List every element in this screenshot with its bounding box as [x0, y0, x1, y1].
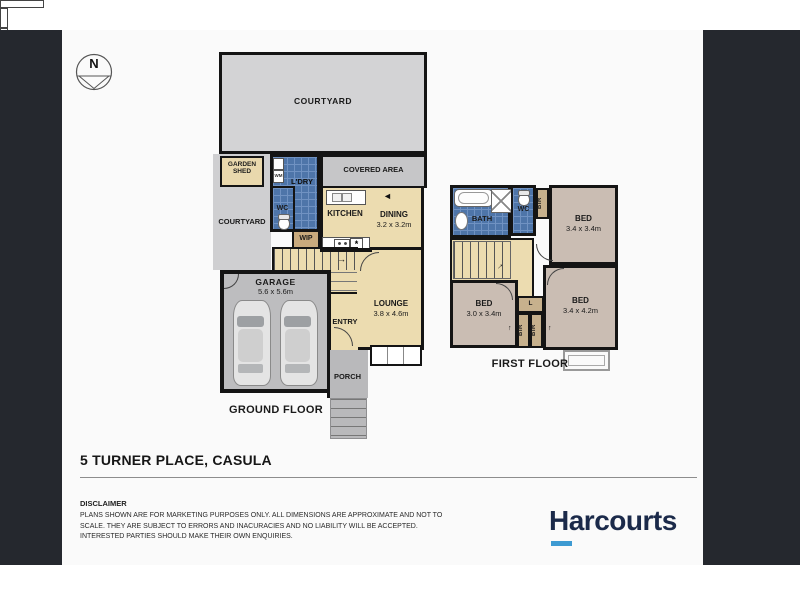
bed2-dimensions: 3.0 x 3.4m — [452, 310, 516, 318]
car-windshield — [237, 316, 264, 327]
bed3-label: BED — [545, 297, 616, 306]
courtyard-side-label: COURTYARD — [212, 218, 272, 226]
kitchen-lounge-wall — [320, 248, 372, 252]
car-rear-window — [285, 364, 310, 373]
toilet-tank-icon — [278, 214, 290, 220]
north-compass-icon: N — [75, 53, 113, 91]
car-roof — [238, 329, 263, 362]
slider-arrow-icon: ◄ — [383, 192, 392, 201]
toilet-tank-icon — [518, 190, 530, 196]
entry-landing-steps — [331, 272, 357, 294]
sliding-door — [0, 0, 44, 8]
wc-first-label: WC — [511, 206, 536, 214]
window — [0, 8, 8, 28]
dryer-icon — [273, 158, 284, 170]
bed1-label: BED — [551, 215, 616, 224]
entry-label: ENTRY — [328, 318, 362, 326]
address-divider — [80, 477, 697, 478]
bed1-dimensions: 3.4 x 3.4m — [551, 225, 616, 233]
covered-area-label: COVERED AREA — [322, 166, 425, 174]
bathtub-icon — [454, 189, 493, 207]
bay-window — [370, 345, 422, 366]
lounge-label: LOUNGE — [360, 300, 422, 309]
laundry-label: L'DRY — [284, 178, 320, 186]
ground-floor-title: GROUND FLOOR — [215, 404, 337, 416]
porch-label: PORCH — [327, 373, 368, 381]
dining-label: DINING — [368, 211, 420, 220]
car-icon — [280, 300, 318, 386]
bir1-label: BIR — [537, 190, 548, 217]
car-roof — [285, 329, 310, 362]
sink-bowl-icon — [332, 193, 342, 202]
first-floor-title: FIRST FLOOR — [455, 358, 605, 370]
dining-dimensions: 3.2 x 3.2m — [368, 221, 420, 229]
car-rear-window — [238, 364, 263, 373]
linen-label: L — [517, 300, 544, 307]
car-icon — [233, 300, 271, 386]
car-windshield — [284, 316, 311, 327]
bir-arrow-icon: ↑ — [508, 325, 512, 332]
bed2-label: BED — [452, 300, 516, 309]
garage-dimensions: 5.6 x 5.6m — [222, 288, 329, 296]
floorplan-page: N COURTYARD COURTYARD GARDEN SHED COVERE… — [0, 0, 800, 600]
bathtub-inner — [458, 192, 489, 204]
compass-north-label: N — [75, 56, 113, 71]
kitchen-label: KITCHEN — [322, 210, 368, 219]
washing-machine-label: WM — [273, 174, 285, 179]
lounge-dimensions: 3.8 x 4.6m — [360, 310, 422, 318]
shower-icon — [491, 189, 512, 213]
harcourts-logo-underline — [551, 541, 572, 546]
bed3-dimensions: 3.4 x 4.2m — [545, 307, 616, 315]
wc-ground-label: WC — [270, 205, 295, 213]
bir2-label: BIR — [518, 316, 529, 345]
bir-arrow-icon: ↑ — [548, 325, 552, 332]
harcourts-logo: Harcourts — [549, 505, 677, 537]
disclaimer-heading: DISCLAIMER — [80, 499, 127, 508]
wip-label: WIP — [292, 235, 320, 243]
courtyard-top-label: COURTYARD — [219, 97, 427, 106]
bir3-label: BIR — [531, 316, 542, 345]
sink-bowl-icon — [342, 193, 352, 202]
garden-shed-label: GARDEN SHED — [220, 161, 264, 175]
left-dark-panel — [0, 30, 62, 565]
property-address: 5 TURNER PLACE, CASULA — [80, 452, 272, 468]
right-dark-panel — [703, 30, 800, 565]
disclaimer-body: PLANS SHOWN ARE FOR MARKETING PURPOSES O… — [80, 511, 452, 543]
bath-label: BATH — [462, 215, 502, 223]
stair-arrow-icon: → — [337, 255, 346, 264]
garage-label: GARAGE — [222, 278, 329, 287]
